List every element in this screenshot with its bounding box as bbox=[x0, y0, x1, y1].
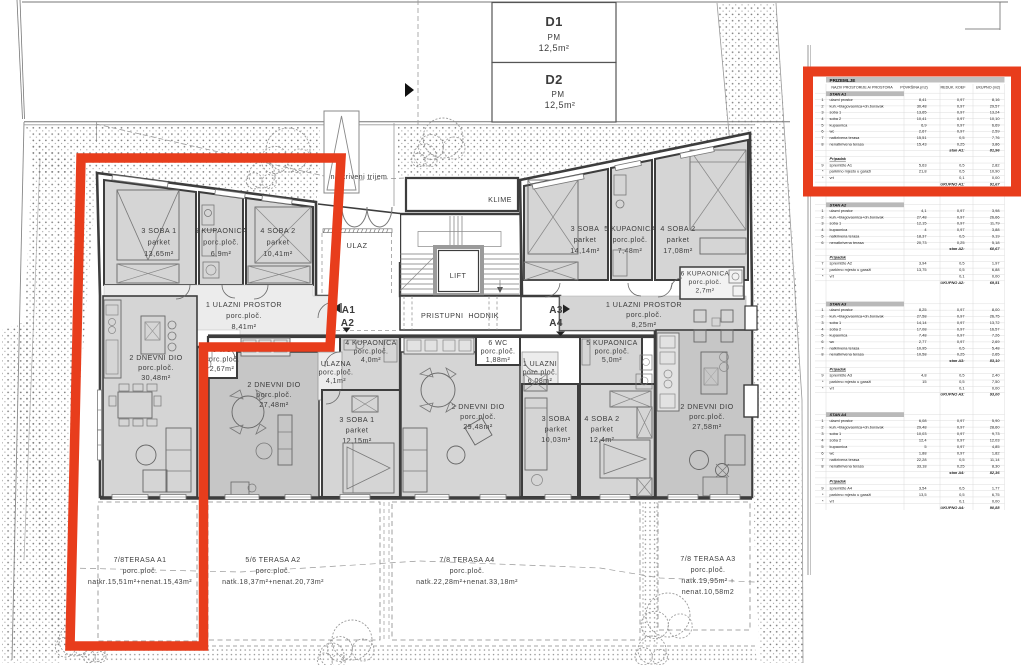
svg-text:8: 8 bbox=[821, 464, 823, 469]
svg-text:7/8 TERASA A4: 7/8 TERASA A4 bbox=[439, 557, 494, 564]
svg-text:wc: wc bbox=[830, 129, 835, 134]
svg-text:parket: parket bbox=[346, 426, 369, 435]
svg-text:A1: A1 bbox=[342, 305, 356, 316]
svg-text:3,94: 3,94 bbox=[919, 261, 927, 266]
svg-text:7/8TERASA A1: 7/8TERASA A1 bbox=[114, 557, 167, 564]
svg-text:7,48: 7,48 bbox=[919, 333, 927, 338]
svg-text:0,97: 0,97 bbox=[957, 326, 965, 331]
svg-text:8,00: 8,00 bbox=[992, 307, 1000, 312]
svg-text:13,65m²: 13,65m² bbox=[144, 249, 174, 258]
svg-text:parket: parket bbox=[591, 425, 614, 434]
svg-text:5: 5 bbox=[821, 122, 823, 127]
svg-text:18,37: 18,37 bbox=[917, 233, 927, 238]
svg-text:5,63: 5,63 bbox=[919, 162, 927, 167]
svg-text:spremište A1: spremište A1 bbox=[830, 162, 853, 167]
svg-text:9: 9 bbox=[821, 162, 823, 167]
svg-text:0,25: 0,25 bbox=[957, 352, 965, 357]
svg-text:soba 1: soba 1 bbox=[830, 431, 842, 436]
svg-text:9,19: 9,19 bbox=[992, 233, 1000, 238]
svg-text:0,97: 0,97 bbox=[957, 437, 965, 442]
svg-text:Pripadak: Pripadak bbox=[830, 479, 847, 484]
svg-text:5 KUPAONICA: 5 KUPAONICA bbox=[195, 226, 248, 235]
svg-text:1 ULAZNI PROSTOR: 1 ULAZNI PROSTOR bbox=[206, 300, 282, 309]
svg-text:5,18: 5,18 bbox=[992, 240, 1000, 245]
svg-text:3 SOBA: 3 SOBA bbox=[571, 224, 600, 233]
svg-text:4 SOBA 2: 4 SOBA 2 bbox=[584, 414, 619, 423]
svg-text:POVRŠINA (m2): POVRŠINA (m2) bbox=[900, 84, 927, 89]
svg-text:1,88: 1,88 bbox=[919, 451, 927, 456]
svg-text:2: 2 bbox=[821, 214, 823, 219]
svg-text:PM: PM bbox=[548, 33, 561, 42]
svg-text:0,97: 0,97 bbox=[957, 214, 965, 219]
svg-text:2,67: 2,67 bbox=[919, 129, 927, 134]
svg-text:21,8: 21,8 bbox=[919, 169, 927, 174]
svg-text:porc.ploč.: porc.ploč. bbox=[123, 568, 158, 575]
svg-text:spremište A2: spremište A2 bbox=[830, 261, 853, 266]
svg-text:0,00: 0,00 bbox=[992, 273, 1000, 278]
svg-text:0,97: 0,97 bbox=[957, 314, 965, 319]
svg-text:0,97: 0,97 bbox=[957, 208, 965, 213]
svg-text:0,00: 0,00 bbox=[992, 385, 1000, 390]
svg-text:kuh.+blagovaonica+dn.boravak: kuh.+blagovaonica+dn.boravak bbox=[830, 314, 884, 319]
svg-text:7/8 TERASA A3: 7/8 TERASA A3 bbox=[680, 556, 735, 563]
svg-text:0,5: 0,5 bbox=[959, 457, 964, 462]
svg-text:91,67: 91,67 bbox=[990, 181, 1001, 186]
svg-text:*: * bbox=[822, 273, 824, 278]
svg-text:2: 2 bbox=[821, 314, 823, 319]
svg-text:6: 6 bbox=[821, 339, 823, 344]
svg-text:29,57: 29,57 bbox=[990, 103, 1000, 108]
svg-text:porc.ploč.: porc.ploč. bbox=[481, 349, 516, 356]
svg-text:4: 4 bbox=[924, 227, 927, 232]
svg-text:ULAZ: ULAZ bbox=[347, 241, 368, 250]
svg-text:nenatkrivena terasa: nenatkrivena terasa bbox=[830, 464, 865, 469]
svg-text:natkrivena terasa: natkrivena terasa bbox=[830, 345, 861, 350]
svg-text:1,82: 1,82 bbox=[992, 451, 1000, 456]
svg-text:PM: PM bbox=[552, 90, 565, 99]
svg-text:0,97: 0,97 bbox=[957, 444, 965, 449]
svg-text:14,14: 14,14 bbox=[917, 320, 928, 325]
svg-text:A4: A4 bbox=[549, 318, 563, 329]
svg-text:30,48m²: 30,48m² bbox=[141, 373, 171, 382]
svg-text:nenatkrivena terasa: nenatkrivena terasa bbox=[830, 352, 865, 357]
svg-text:spremište A4: spremište A4 bbox=[830, 485, 853, 490]
svg-text:2: 2 bbox=[821, 103, 823, 108]
svg-text:natkrivena terasa: natkrivena terasa bbox=[830, 457, 861, 462]
svg-text:D2: D2 bbox=[545, 72, 562, 87]
svg-text:2 DNEVNI DIO: 2 DNEVNI DIO bbox=[451, 402, 504, 411]
svg-text:0,97: 0,97 bbox=[957, 424, 965, 429]
svg-text:3,86: 3,86 bbox=[992, 141, 1000, 146]
svg-text:9: 9 bbox=[821, 485, 823, 490]
svg-text:nenatkrivena terasa: nenatkrivena terasa bbox=[830, 141, 865, 146]
svg-text:parket: parket bbox=[545, 425, 568, 434]
svg-text:1,88m²: 1,88m² bbox=[486, 357, 511, 364]
svg-text:0,5: 0,5 bbox=[959, 261, 964, 266]
svg-text:REDUK. KOEF: REDUK. KOEF bbox=[941, 85, 967, 89]
svg-text:2,69: 2,69 bbox=[992, 339, 1000, 344]
svg-text:porc.ploč.: porc.ploč. bbox=[460, 412, 496, 421]
svg-text:12,15: 12,15 bbox=[917, 221, 927, 226]
svg-text:0,97: 0,97 bbox=[957, 339, 965, 344]
svg-text:parkirno mjesto u garaži: parkirno mjesto u garaži bbox=[830, 492, 872, 497]
svg-text:parkirno mjesto u garaži: parkirno mjesto u garaži bbox=[830, 379, 872, 384]
svg-text:4,85: 4,85 bbox=[992, 444, 1000, 449]
svg-text:stan A1:: stan A1: bbox=[949, 148, 965, 153]
svg-text:7: 7 bbox=[821, 345, 823, 350]
svg-text:porc.ploč.: porc.ploč. bbox=[450, 568, 485, 575]
svg-text:UKUPNO A4:: UKUPNO A4: bbox=[940, 505, 965, 510]
svg-text:15,43: 15,43 bbox=[917, 141, 927, 146]
svg-text:8,25m²: 8,25m² bbox=[631, 320, 656, 329]
svg-text:4 KUPAONICA: 4 KUPAONICA bbox=[345, 340, 397, 347]
svg-text:D1: D1 bbox=[545, 14, 562, 29]
svg-text:STAN A4: STAN A4 bbox=[830, 412, 847, 417]
svg-text:15,51: 15,51 bbox=[917, 135, 927, 140]
svg-text:9: 9 bbox=[821, 373, 823, 378]
svg-text:5,0m²: 5,0m² bbox=[602, 357, 622, 364]
svg-text:0,97: 0,97 bbox=[957, 122, 965, 127]
svg-text:spremište A3: spremište A3 bbox=[830, 373, 853, 378]
svg-text:UKUPNO A1:: UKUPNO A1: bbox=[940, 181, 965, 186]
svg-text:0,25: 0,25 bbox=[957, 464, 965, 469]
svg-text:0,97: 0,97 bbox=[957, 333, 965, 338]
svg-text:0,97: 0,97 bbox=[957, 431, 965, 436]
svg-text:7: 7 bbox=[821, 457, 823, 462]
svg-text:6,9: 6,9 bbox=[921, 122, 926, 127]
svg-text:81,96: 81,96 bbox=[990, 148, 1001, 153]
svg-text:17,08m²: 17,08m² bbox=[663, 246, 693, 255]
svg-text:wc: wc bbox=[830, 339, 835, 344]
svg-text:ulazni prostor: ulazni prostor bbox=[830, 97, 854, 102]
svg-text:stan A2:: stan A2: bbox=[949, 246, 965, 251]
svg-text:10,10: 10,10 bbox=[990, 116, 1001, 121]
svg-text:3: 3 bbox=[821, 431, 823, 436]
svg-text:parkirno mjesto u garaži: parkirno mjesto u garaži bbox=[830, 169, 872, 174]
svg-text:1 ULAZNI: 1 ULAZNI bbox=[523, 361, 557, 368]
svg-text:3 SOBA 1: 3 SOBA 1 bbox=[141, 226, 176, 235]
svg-text:vrt: vrt bbox=[830, 385, 835, 390]
svg-text:2,77: 2,77 bbox=[919, 339, 927, 344]
svg-text:0,97: 0,97 bbox=[957, 320, 965, 325]
svg-text:porc.ploč.: porc.ploč. bbox=[626, 310, 662, 319]
svg-text:0,5: 0,5 bbox=[959, 162, 964, 167]
svg-text:83,10: 83,10 bbox=[990, 358, 1001, 363]
svg-text:soba 2: soba 2 bbox=[830, 326, 842, 331]
svg-text:kupaonica: kupaonica bbox=[830, 227, 849, 232]
svg-text:6: 6 bbox=[821, 129, 823, 134]
svg-text:10,90: 10,90 bbox=[990, 169, 1001, 174]
svg-text:10,95: 10,95 bbox=[917, 345, 927, 350]
svg-text:5: 5 bbox=[821, 233, 823, 238]
svg-text:vrt: vrt bbox=[830, 273, 835, 278]
svg-text:2,40: 2,40 bbox=[992, 373, 1000, 378]
svg-text:natkrivena terasa: natkrivena terasa bbox=[830, 233, 861, 238]
svg-text:60,67: 60,67 bbox=[990, 246, 1001, 251]
svg-text:0,97: 0,97 bbox=[957, 97, 965, 102]
svg-text:1: 1 bbox=[821, 97, 823, 102]
svg-text:12,15m²: 12,15m² bbox=[342, 436, 372, 445]
svg-text:2 DNEVNI DIO: 2 DNEVNI DIO bbox=[680, 402, 733, 411]
svg-text:3,88: 3,88 bbox=[992, 227, 1000, 232]
svg-text:3 SOBA: 3 SOBA bbox=[542, 414, 571, 423]
svg-text:2 DNEVNI DIO: 2 DNEVNI DIO bbox=[247, 380, 300, 389]
svg-text:33,18: 33,18 bbox=[917, 464, 927, 469]
svg-text:0,97: 0,97 bbox=[957, 307, 965, 312]
svg-text:0,5: 0,5 bbox=[959, 485, 964, 490]
svg-text:0,97: 0,97 bbox=[957, 451, 965, 456]
svg-text:82,36: 82,36 bbox=[990, 470, 1001, 475]
svg-text:natkrivena terasa: natkrivena terasa bbox=[830, 135, 861, 140]
svg-text:10,03: 10,03 bbox=[917, 431, 927, 436]
svg-text:nenat.10,58m2: nenat.10,58m2 bbox=[682, 589, 735, 596]
svg-text:A2: A2 bbox=[341, 318, 355, 329]
svg-text:3 SOBA 1: 3 SOBA 1 bbox=[339, 415, 374, 424]
svg-text:1: 1 bbox=[821, 307, 823, 312]
svg-text:kuh.+blagovaonica+dn.boravak: kuh.+blagovaonica+dn.boravak bbox=[830, 424, 884, 429]
svg-text:5: 5 bbox=[821, 444, 823, 449]
svg-text:wc: wc bbox=[830, 451, 835, 456]
svg-text:8: 8 bbox=[821, 352, 823, 357]
svg-text:1: 1 bbox=[821, 208, 823, 213]
svg-text:27,58: 27,58 bbox=[917, 314, 927, 319]
svg-text:6,75: 6,75 bbox=[992, 492, 1000, 497]
svg-text:porc.ploč.: porc.ploč. bbox=[523, 370, 558, 377]
svg-text:12,03: 12,03 bbox=[990, 437, 1000, 442]
svg-text:5,48: 5,48 bbox=[992, 345, 1000, 350]
svg-text:STAN A2: STAN A2 bbox=[830, 202, 847, 207]
svg-text:69,51: 69,51 bbox=[990, 280, 1000, 285]
svg-text:parket: parket bbox=[148, 238, 171, 247]
svg-text:ulazni prostor: ulazni prostor bbox=[830, 307, 854, 312]
svg-text:stan A3:: stan A3: bbox=[949, 358, 965, 363]
svg-text:13,72: 13,72 bbox=[990, 320, 1000, 325]
svg-text:29,48: 29,48 bbox=[917, 424, 927, 429]
svg-text:0,25: 0,25 bbox=[957, 141, 965, 146]
svg-text:0,97: 0,97 bbox=[957, 129, 965, 134]
svg-text:2,7m²: 2,7m² bbox=[695, 288, 714, 295]
svg-text:12,4m²: 12,4m² bbox=[589, 435, 614, 444]
svg-text:Pripadak: Pripadak bbox=[830, 254, 847, 259]
svg-text:8,41: 8,41 bbox=[919, 97, 927, 102]
svg-text:3,54: 3,54 bbox=[919, 485, 927, 490]
svg-text:6: 6 bbox=[821, 240, 823, 245]
svg-text:soba 2: soba 2 bbox=[830, 116, 842, 121]
svg-text:0,5: 0,5 bbox=[959, 373, 964, 378]
svg-text:27,48: 27,48 bbox=[917, 214, 927, 219]
svg-text:3: 3 bbox=[821, 110, 823, 115]
svg-text:porc.ploč.: porc.ploč. bbox=[595, 349, 630, 356]
svg-text:kuh.+blagovaonica+dn.boravak: kuh.+blagovaonica+dn.boravak bbox=[830, 103, 884, 108]
svg-text:natk.18,37m²+nenat.20,73m²: natk.18,37m²+nenat.20,73m² bbox=[222, 579, 324, 586]
svg-text:*: * bbox=[822, 498, 824, 503]
svg-text:8: 8 bbox=[821, 141, 823, 146]
svg-text:nenatkrivena terasa: nenatkrivena terasa bbox=[830, 240, 865, 245]
svg-text:PRIZEMLJE: PRIZEMLJE bbox=[830, 78, 856, 83]
svg-text:ulazni prostor: ulazni prostor bbox=[830, 418, 854, 423]
svg-text:natk.22,28m²+nenat.33,18m²: natk.22,28m²+nenat.33,18m² bbox=[416, 579, 518, 586]
svg-text:0,5: 0,5 bbox=[959, 492, 964, 497]
svg-text:porc.ploč.: porc.ploč. bbox=[205, 357, 240, 364]
svg-text:porc.ploč.: porc.ploč. bbox=[689, 412, 725, 421]
svg-text:vrt: vrt bbox=[830, 498, 835, 503]
svg-text:0,00: 0,00 bbox=[992, 175, 1000, 180]
svg-text:10,41: 10,41 bbox=[917, 116, 927, 121]
svg-text:7: 7 bbox=[821, 135, 823, 140]
svg-text:kupaonica: kupaonica bbox=[830, 333, 849, 338]
svg-text:soba 1: soba 1 bbox=[830, 320, 842, 325]
svg-text:1 ULAZNI PROSTOR: 1 ULAZNI PROSTOR bbox=[606, 300, 682, 309]
svg-text:12,5m²: 12,5m² bbox=[545, 100, 576, 110]
svg-text:9,73: 9,73 bbox=[992, 431, 1000, 436]
svg-text:0,1: 0,1 bbox=[959, 273, 964, 278]
svg-text:16,57: 16,57 bbox=[990, 326, 1000, 331]
svg-text:UKUPNO (m2): UKUPNO (m2) bbox=[976, 85, 1000, 89]
svg-text:5 KUPAONICA: 5 KUPAONICA bbox=[586, 340, 638, 347]
svg-text:6,08: 6,08 bbox=[919, 418, 927, 423]
svg-text:kupaonica: kupaonica bbox=[830, 444, 849, 449]
svg-text:STAN A3: STAN A3 bbox=[830, 302, 847, 307]
svg-text:22,28: 22,28 bbox=[917, 457, 927, 462]
svg-text:1,77: 1,77 bbox=[992, 485, 1000, 490]
svg-text:*: * bbox=[822, 267, 824, 272]
svg-text:8,25: 8,25 bbox=[919, 307, 927, 312]
svg-text:*: * bbox=[822, 385, 824, 390]
svg-text:porc.ploč.: porc.ploč. bbox=[226, 311, 262, 320]
svg-text:0,00: 0,00 bbox=[992, 498, 1000, 503]
svg-text:5: 5 bbox=[924, 444, 926, 449]
svg-text:soba 1: soba 1 bbox=[830, 221, 842, 226]
svg-text:12,5m²: 12,5m² bbox=[539, 43, 570, 53]
svg-text:parket: parket bbox=[574, 235, 597, 244]
svg-text:0,1: 0,1 bbox=[959, 498, 964, 503]
svg-text:*: * bbox=[822, 379, 824, 384]
svg-text:KLIME: KLIME bbox=[488, 195, 512, 204]
svg-text:13,5: 13,5 bbox=[919, 492, 927, 497]
svg-text:5,90: 5,90 bbox=[992, 418, 1000, 423]
svg-text:6: 6 bbox=[821, 451, 823, 456]
svg-text:1: 1 bbox=[821, 418, 823, 423]
svg-text:0,5: 0,5 bbox=[959, 267, 964, 272]
svg-text:10,03m²: 10,03m² bbox=[541, 435, 571, 444]
svg-text:0,25: 0,25 bbox=[957, 240, 965, 245]
svg-text:13,75: 13,75 bbox=[917, 267, 927, 272]
svg-text:0,97: 0,97 bbox=[957, 103, 965, 108]
svg-text:30,48: 30,48 bbox=[917, 103, 927, 108]
svg-text:parkirno mjesto u garaži: parkirno mjesto u garaži bbox=[830, 267, 872, 272]
svg-text:0,5: 0,5 bbox=[959, 345, 964, 350]
svg-text:2,59: 2,59 bbox=[992, 129, 1000, 134]
svg-text:11,14: 11,14 bbox=[990, 457, 1000, 462]
svg-text:porc.ploč.: porc.ploč. bbox=[354, 349, 389, 356]
svg-text:11,79: 11,79 bbox=[990, 221, 999, 226]
svg-text:kuh.+blagovaonica+dn.boravak: kuh.+blagovaonica+dn.boravak bbox=[830, 214, 884, 219]
svg-text:0,97: 0,97 bbox=[957, 227, 965, 232]
svg-text:3,98: 3,98 bbox=[992, 208, 1000, 213]
svg-text:UKUPNO A2:: UKUPNO A2: bbox=[940, 280, 965, 285]
svg-text:2 DNEVNI DIO: 2 DNEVNI DIO bbox=[129, 353, 182, 362]
svg-text:STAN A1: STAN A1 bbox=[830, 91, 847, 96]
svg-text:7: 7 bbox=[821, 261, 823, 266]
svg-text:10,58: 10,58 bbox=[917, 352, 927, 357]
svg-text:porc.ploč.: porc.ploč. bbox=[203, 238, 239, 247]
svg-text:26,66: 26,66 bbox=[990, 214, 1000, 219]
svg-text:0,97: 0,97 bbox=[957, 116, 965, 121]
svg-text:13,24: 13,24 bbox=[990, 110, 1001, 115]
svg-text:6,69: 6,69 bbox=[992, 122, 1000, 127]
svg-text:0,97: 0,97 bbox=[957, 110, 965, 115]
svg-text:porc.ploč.: porc.ploč. bbox=[256, 390, 292, 399]
svg-text:0,1: 0,1 bbox=[959, 385, 964, 390]
svg-text:0,5: 0,5 bbox=[959, 135, 964, 140]
svg-text:5: 5 bbox=[821, 333, 823, 338]
svg-text:7,26: 7,26 bbox=[992, 333, 1000, 338]
svg-text:kupaonica: kupaonica bbox=[830, 122, 849, 127]
svg-text:6 WC: 6 WC bbox=[488, 340, 507, 347]
svg-text:15: 15 bbox=[922, 379, 926, 384]
svg-text:8,16: 8,16 bbox=[992, 97, 1000, 102]
svg-text:0,97: 0,97 bbox=[957, 221, 965, 226]
svg-text:7,48m²: 7,48m² bbox=[618, 248, 643, 255]
svg-text:porc.ploč.: porc.ploč. bbox=[319, 370, 354, 377]
svg-text:8,30: 8,30 bbox=[992, 464, 1000, 469]
svg-text:6,9m²: 6,9m² bbox=[211, 249, 232, 258]
svg-text:porc.ploč.: porc.ploč. bbox=[138, 363, 174, 372]
svg-text:parket: parket bbox=[267, 238, 290, 247]
svg-text:LIFT: LIFT bbox=[450, 271, 467, 280]
svg-text:Pripadak: Pripadak bbox=[830, 366, 847, 371]
svg-text:6,88: 6,88 bbox=[992, 267, 1000, 272]
svg-text:0,5: 0,5 bbox=[959, 169, 964, 174]
svg-text:26,75: 26,75 bbox=[990, 314, 1000, 319]
svg-text:5 KUPAONICA: 5 KUPAONICA bbox=[604, 226, 656, 233]
svg-text:NAZIV PROSTORIJE A/ PROSTORA: NAZIV PROSTORIJE A/ PROSTORA bbox=[831, 85, 893, 89]
svg-text:parket: parket bbox=[667, 235, 690, 244]
svg-text:*: * bbox=[822, 492, 824, 497]
svg-text:Pripadak: Pripadak bbox=[830, 156, 847, 161]
svg-text:3: 3 bbox=[821, 221, 823, 226]
svg-text:2,67m²: 2,67m² bbox=[210, 366, 235, 373]
svg-text:28,60: 28,60 bbox=[990, 424, 1001, 429]
svg-text:93,00: 93,00 bbox=[990, 392, 1001, 397]
svg-text:soba 2: soba 2 bbox=[830, 437, 842, 442]
svg-text:porc.ploč.: porc.ploč. bbox=[691, 567, 726, 574]
svg-text:2,82: 2,82 bbox=[992, 162, 1000, 167]
svg-text:0,1: 0,1 bbox=[959, 175, 964, 180]
svg-text:natkr.15,51m²+nenat.15,43m²: natkr.15,51m²+nenat.15,43m² bbox=[88, 579, 192, 586]
svg-text:3: 3 bbox=[821, 320, 823, 325]
svg-text:2: 2 bbox=[821, 424, 823, 429]
svg-text:7,76: 7,76 bbox=[992, 135, 1000, 140]
svg-text:8,41m²: 8,41m² bbox=[231, 322, 256, 331]
svg-text:UKUPNO A3:: UKUPNO A3: bbox=[940, 392, 965, 397]
svg-text:4,0m²: 4,0m² bbox=[361, 357, 381, 364]
svg-text:12,4: 12,4 bbox=[919, 437, 927, 442]
svg-text:1,97: 1,97 bbox=[992, 261, 1000, 266]
svg-text:4: 4 bbox=[821, 326, 824, 331]
svg-text:20,73: 20,73 bbox=[917, 240, 927, 245]
svg-text:90,88: 90,88 bbox=[990, 505, 1001, 510]
svg-text:27,58m²: 27,58m² bbox=[692, 422, 722, 431]
svg-text:porc.ploč.: porc.ploč. bbox=[688, 279, 721, 286]
svg-text:7,50: 7,50 bbox=[992, 379, 1000, 384]
svg-text:4: 4 bbox=[821, 227, 824, 232]
svg-text:PRISTUPNI HODNIK: PRISTUPNI HODNIK bbox=[421, 311, 499, 320]
svg-text:10,41m²: 10,41m² bbox=[263, 249, 293, 258]
svg-text:0,5: 0,5 bbox=[959, 233, 964, 238]
svg-text:A3: A3 bbox=[549, 305, 563, 316]
svg-text:6 KUPAONICA: 6 KUPAONICA bbox=[681, 271, 730, 278]
